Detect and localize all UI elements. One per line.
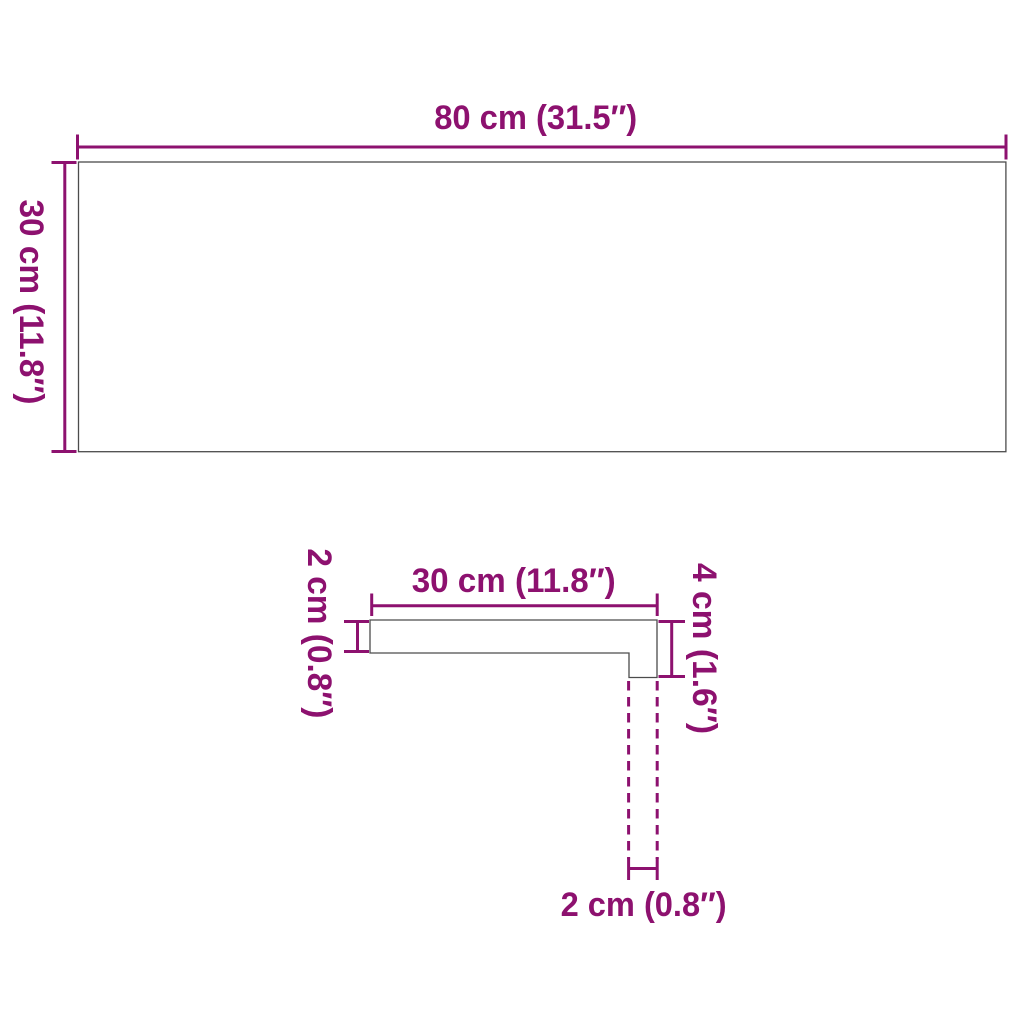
- svg-text:30 cm (11.8″): 30 cm (11.8″): [12, 200, 50, 405]
- svg-text:80 cm (31.5″): 80 cm (31.5″): [434, 99, 637, 137]
- svg-text:4 cm (1.6″): 4 cm (1.6″): [685, 563, 723, 734]
- svg-text:30 cm (11.8″): 30 cm (11.8″): [412, 562, 616, 600]
- svg-text:2 cm (0.8″): 2 cm (0.8″): [300, 548, 338, 718]
- svg-text:2 cm (0.8″): 2 cm (0.8″): [561, 886, 727, 924]
